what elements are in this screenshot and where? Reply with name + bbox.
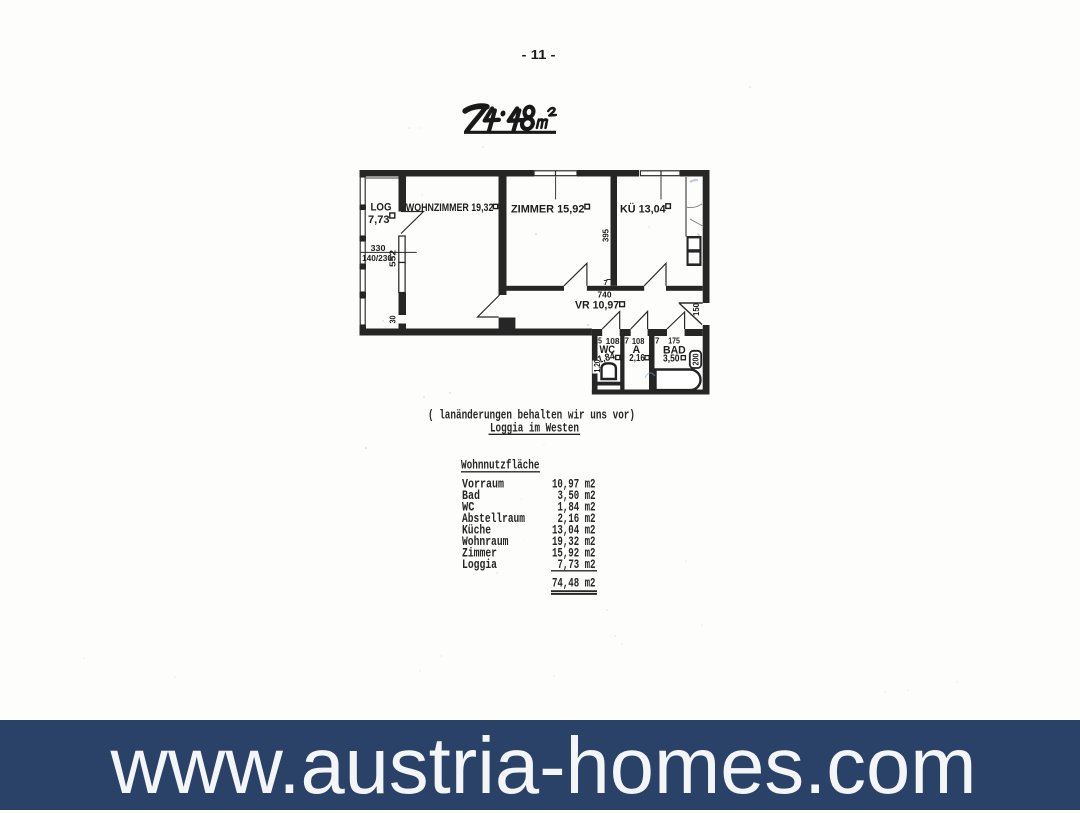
svg-text:VR 10,97: VR 10,97 — [575, 299, 619, 311]
svg-text:552: 552 — [389, 249, 398, 267]
svg-text:Loggia: Loggia — [462, 558, 497, 572]
svg-text:200: 200 — [692, 353, 701, 365]
svg-text:150: 150 — [692, 302, 701, 316]
svg-text:( lanänderungen behalten wir u: ( lanänderungen behalten wir uns vor) — [428, 408, 635, 422]
svg-text:7: 7 — [625, 336, 630, 345]
svg-text:330: 330 — [371, 244, 387, 253]
svg-text:Loggia im Westen: Loggia im Westen — [490, 421, 579, 435]
svg-text:2,16: 2,16 — [629, 353, 645, 364]
svg-text:LOG: LOG — [371, 201, 392, 213]
svg-text:KÜ 13,04: KÜ 13,04 — [620, 202, 666, 215]
svg-text:ZIMMER 15,92: ZIMMER 15,92 — [511, 203, 584, 215]
svg-text:30: 30 — [389, 315, 398, 323]
svg-text:3,50: 3,50 — [663, 354, 680, 365]
svg-text:740: 740 — [598, 291, 613, 300]
svg-text:WOHNZIMMER 19,32: WOHNZIMMER 19,32 — [406, 202, 494, 214]
svg-text:7: 7 — [655, 336, 660, 345]
svg-text:395: 395 — [602, 228, 611, 242]
svg-text:Wohnnutzfläche: Wohnnutzfläche — [461, 458, 540, 472]
svg-text:7,73: 7,73 — [368, 214, 390, 226]
svg-text:74,48 m2: 74,48 m2 — [552, 577, 596, 591]
svg-text:- 11 -: - 11 - — [522, 48, 556, 62]
